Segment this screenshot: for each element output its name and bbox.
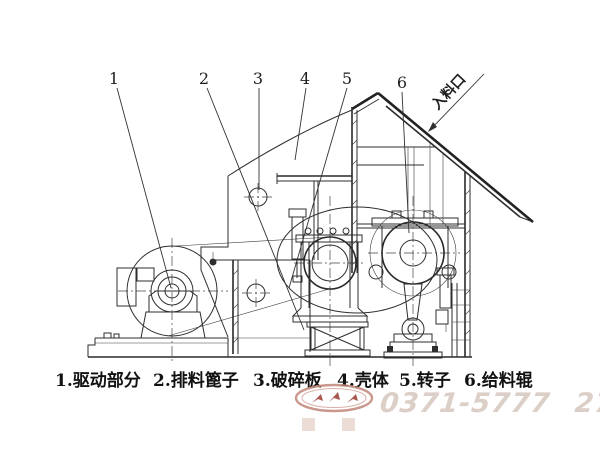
callout-leaders — [117, 88, 409, 330]
callout-number-5: 5 — [342, 69, 352, 88]
caption-item-3: 3.破碎板 — [253, 366, 322, 391]
housing-shell — [201, 93, 470, 357]
caption-item-5: 5.转子 — [399, 366, 451, 391]
inlet-label: 入料口 — [428, 71, 469, 113]
feed-chute — [378, 93, 533, 222]
inlet-label-group: 入料口 — [428, 71, 484, 132]
callout-number-6: 6 — [397, 73, 407, 92]
callout-numbers: 1 2 3 4 5 6 — [109, 69, 407, 92]
base-frame — [88, 333, 472, 357]
bolt-crosshair-upper — [244, 183, 272, 211]
callout-number-3: 3 — [253, 69, 263, 88]
feed-roller-assembly — [369, 210, 458, 358]
drive-motor-group — [117, 237, 331, 338]
caption-item-2: 2.排料篦子 — [153, 366, 239, 391]
tension-cylinder — [289, 209, 306, 282]
bolt-crosshair-lower — [242, 279, 270, 307]
screenshot-root: 1 2 3 4 5 6 入料口 1.驱动部分 2.排料篦子 3.破碎板 4.壳体… — [0, 0, 600, 450]
callout-number-2: 2 — [199, 69, 209, 88]
callout-number-4: 4 — [300, 69, 310, 88]
caption-item-1: 1.驱动部分 — [55, 366, 141, 391]
callout-number-1: 1 — [109, 69, 119, 88]
caption-item-6: 6.给料辊 — [464, 366, 533, 391]
bolt — [210, 259, 217, 266]
caption-item-4: 4.壳体 — [337, 366, 389, 391]
x-support-stand — [305, 322, 370, 356]
